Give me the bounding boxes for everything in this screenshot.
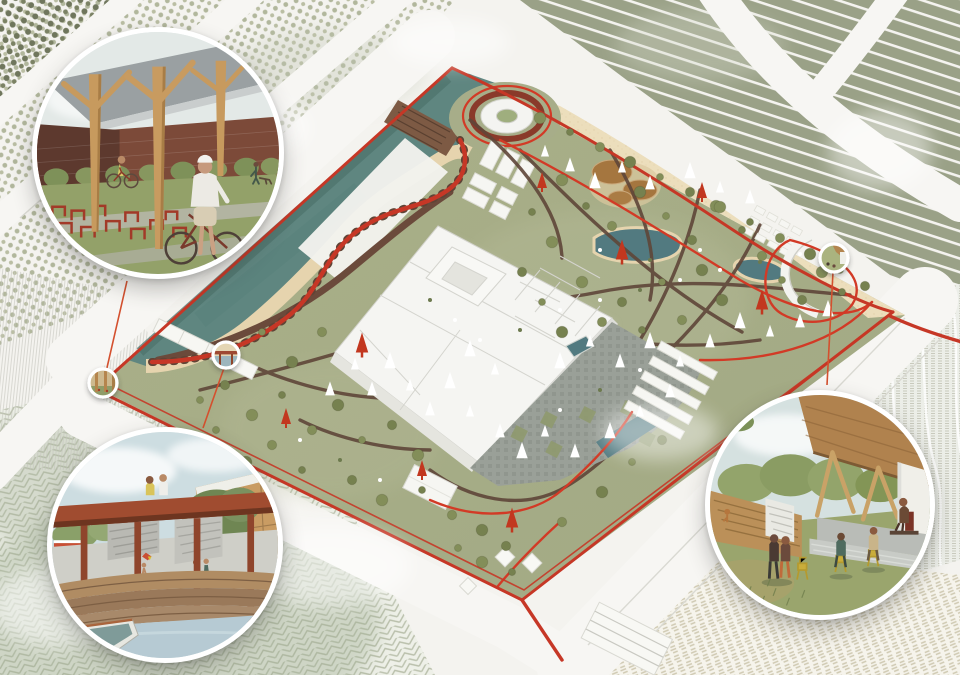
vignette-pergola [32, 27, 284, 279]
vignette-bridge-art [52, 432, 278, 658]
plan-marker-pergola [89, 369, 117, 397]
vignette-pergola-art [37, 32, 279, 274]
vignette-pavilion-art [710, 395, 930, 615]
plan-marker-pavilion [820, 244, 848, 272]
masterplan-board [0, 0, 960, 675]
vignette-bridge [47, 427, 283, 663]
vignette-pavilion [705, 390, 935, 620]
plan-marker-bridge [213, 342, 239, 368]
